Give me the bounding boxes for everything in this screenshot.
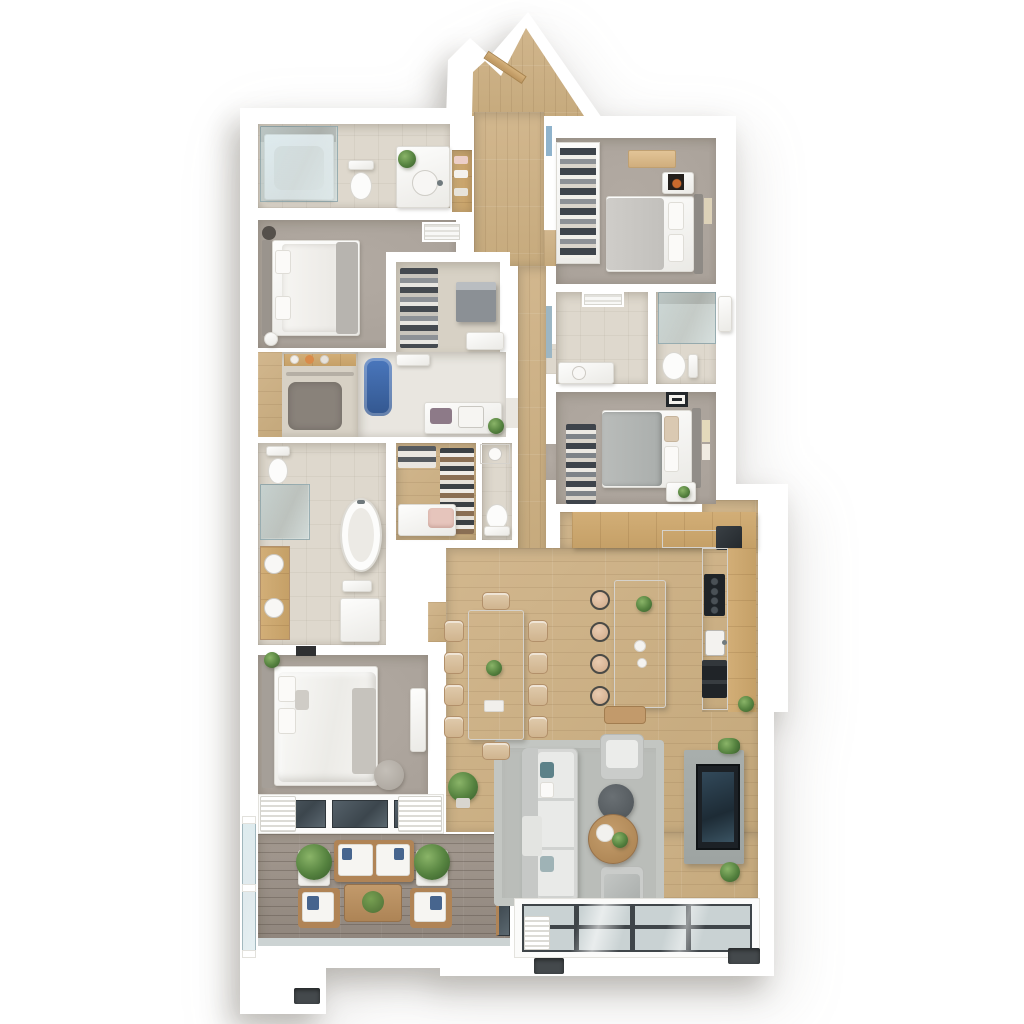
shower-glass bbox=[260, 484, 310, 540]
bed-headboard bbox=[692, 408, 701, 488]
window-blinds bbox=[260, 796, 296, 832]
wall-art bbox=[296, 646, 316, 656]
vanity-faucet bbox=[437, 180, 443, 186]
dining-chair bbox=[444, 716, 464, 738]
bar-stool bbox=[590, 590, 610, 610]
bed-pillow-gray bbox=[295, 690, 309, 710]
toilet-icon bbox=[350, 172, 372, 200]
moss-bowl bbox=[362, 891, 384, 913]
toilet-tank bbox=[484, 526, 510, 536]
hall-wall-art bbox=[546, 306, 552, 358]
wall-notch bbox=[728, 948, 760, 964]
counter-plant bbox=[738, 696, 754, 712]
potted-plant bbox=[264, 652, 280, 668]
table-tray bbox=[484, 700, 504, 712]
linen-towel bbox=[454, 170, 468, 178]
vanity-sink bbox=[264, 554, 284, 574]
hanging-clothes bbox=[566, 424, 596, 504]
bed-pillow bbox=[278, 708, 296, 734]
nursery-wood-strip bbox=[258, 352, 282, 437]
side-table bbox=[342, 580, 372, 592]
floor-hallway bbox=[518, 266, 546, 556]
island-plant bbox=[636, 596, 652, 612]
bed-headboard bbox=[694, 194, 703, 274]
wall-notch bbox=[534, 958, 564, 974]
tub-faucet bbox=[357, 500, 365, 504]
sofa-pillow bbox=[540, 856, 554, 872]
wall-niche-shelf bbox=[718, 296, 732, 332]
blue-pillow bbox=[394, 848, 404, 860]
linen-towel bbox=[454, 188, 468, 196]
nightstand bbox=[264, 332, 278, 346]
balcony-plant bbox=[414, 844, 450, 880]
toy bbox=[320, 355, 329, 364]
bar-stool bbox=[590, 654, 610, 674]
wall-art bbox=[704, 198, 712, 224]
cooktop bbox=[704, 574, 725, 616]
bed-headboard bbox=[262, 240, 272, 336]
dining-chair bbox=[528, 620, 548, 642]
sofa-pillow bbox=[540, 782, 554, 798]
balcony-plant bbox=[296, 844, 332, 880]
stroller bbox=[364, 358, 392, 416]
bar-stool bbox=[590, 686, 610, 706]
blue-pillow bbox=[430, 896, 442, 910]
dining-chair bbox=[444, 652, 464, 674]
bowl bbox=[637, 658, 647, 668]
window-glass bbox=[332, 800, 388, 828]
bed-pillow-beige bbox=[664, 416, 679, 442]
pink-pillow bbox=[428, 508, 454, 528]
railing-post bbox=[242, 816, 256, 824]
hall-wall-art bbox=[546, 126, 552, 156]
window-blinds bbox=[398, 796, 442, 832]
utility-sink bbox=[458, 406, 484, 428]
bath-counter bbox=[558, 362, 614, 384]
dining-chair bbox=[528, 652, 548, 674]
vanity-sink bbox=[412, 170, 438, 196]
pouf bbox=[374, 760, 404, 790]
dining-chair bbox=[444, 684, 464, 706]
railing-post bbox=[242, 950, 256, 958]
fridge bbox=[716, 526, 742, 550]
console-table bbox=[410, 688, 426, 752]
window-reflection bbox=[522, 904, 752, 952]
floor-vent bbox=[424, 224, 460, 240]
armchair-cushion bbox=[606, 740, 638, 768]
picture-frame bbox=[666, 392, 688, 407]
bathtub-basin bbox=[348, 508, 374, 562]
shelf-plant bbox=[720, 862, 740, 882]
dining-chair bbox=[528, 684, 548, 706]
doorway-utility bbox=[506, 398, 518, 428]
potted-plant bbox=[398, 150, 416, 168]
sink-faucet bbox=[722, 640, 727, 645]
bed-pillow bbox=[275, 296, 291, 320]
doorway-bedroom-4 bbox=[546, 444, 556, 480]
toy bbox=[290, 355, 299, 364]
dining-chair bbox=[482, 742, 510, 760]
sofa-cushion bbox=[376, 844, 410, 876]
hanging-rod bbox=[286, 372, 354, 376]
blue-pillow bbox=[307, 896, 319, 910]
bed-duvet bbox=[602, 412, 662, 486]
toilet-icon bbox=[662, 352, 686, 380]
wall-art bbox=[702, 444, 710, 460]
vanity-sink bbox=[264, 598, 284, 618]
toy bbox=[305, 355, 314, 364]
dining-chair bbox=[482, 592, 510, 610]
bed-pillow bbox=[668, 202, 684, 230]
utility-shelf bbox=[396, 354, 430, 366]
shower-glass bbox=[658, 292, 716, 344]
bed-pillow bbox=[664, 446, 679, 472]
bar-stool bbox=[590, 622, 610, 642]
bed-headboard bbox=[262, 664, 274, 788]
toilet-tank bbox=[348, 160, 374, 170]
floor-plan bbox=[0, 0, 1024, 1024]
tv-screen bbox=[702, 772, 734, 842]
oven bbox=[702, 660, 727, 698]
bed-duvet bbox=[606, 198, 664, 270]
sofa-pillow bbox=[540, 762, 554, 778]
toilet-icon bbox=[268, 458, 288, 484]
railing-post bbox=[242, 884, 256, 892]
storage-cabinet bbox=[456, 282, 496, 322]
potted-plant bbox=[488, 418, 504, 434]
bed-pillow bbox=[668, 234, 684, 262]
toilet-tank bbox=[688, 354, 698, 378]
powder-sink bbox=[488, 447, 502, 461]
shoe-shelf bbox=[398, 446, 436, 468]
hanging-clothes bbox=[400, 268, 438, 348]
window-blinds bbox=[524, 916, 550, 950]
nightstand bbox=[262, 226, 276, 240]
railing-top-band bbox=[258, 938, 510, 946]
nightstand-plant bbox=[678, 486, 690, 498]
closet-shelf bbox=[466, 332, 504, 350]
bed-throw bbox=[336, 242, 358, 334]
sofa-blanket bbox=[522, 816, 542, 856]
ceiling-light bbox=[628, 150, 676, 168]
toilet-tank bbox=[266, 446, 290, 456]
dining-chair bbox=[444, 620, 464, 642]
dining-chair bbox=[528, 716, 548, 738]
floor-vent bbox=[584, 294, 622, 305]
bath-cabinet bbox=[340, 598, 380, 642]
nursery-rug bbox=[288, 382, 342, 430]
kitchen-base-cabinets bbox=[728, 548, 756, 712]
bed-throw bbox=[352, 688, 376, 774]
art-block bbox=[668, 174, 684, 190]
plant-pot bbox=[456, 798, 470, 808]
shower-glass bbox=[260, 126, 338, 202]
cushion bbox=[430, 408, 452, 424]
blue-pillow bbox=[342, 848, 352, 860]
folded-clothes bbox=[560, 148, 596, 258]
doorway-bedroom-3 bbox=[544, 230, 556, 266]
shelf-plant bbox=[718, 738, 740, 754]
bed-pillow bbox=[278, 676, 296, 702]
bowl bbox=[634, 640, 646, 652]
bed-pillow bbox=[275, 250, 291, 274]
wall-art bbox=[702, 420, 710, 442]
floor-entry-hall bbox=[474, 112, 544, 266]
end-chair bbox=[604, 706, 646, 724]
wall-notch bbox=[294, 988, 320, 1004]
table-plant bbox=[612, 832, 628, 848]
counter-sink bbox=[572, 366, 586, 380]
linen-towel bbox=[454, 156, 468, 164]
table-plant bbox=[486, 660, 502, 676]
